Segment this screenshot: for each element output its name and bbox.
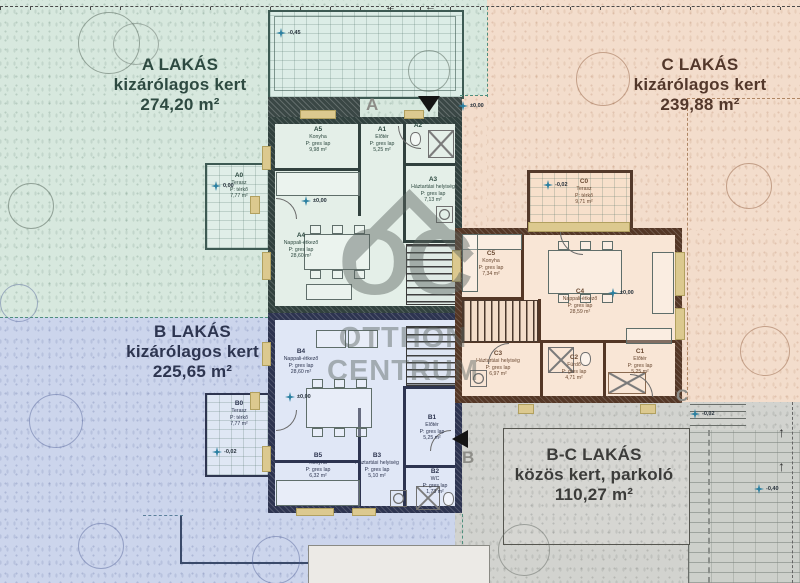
zone-border-peach-inner-v (687, 98, 688, 400)
elevation-marker: 0,00 (211, 181, 234, 191)
garden-bc-label: B-C LAKÁS közös kert, parkoló 110,27 m² (483, 445, 705, 505)
driveway-step (690, 404, 746, 405)
room-label-b2: B2 WC P: gres lap 1,73 m² (412, 468, 458, 496)
window-mark (262, 446, 271, 472)
retaining-wall (180, 516, 182, 564)
zone-border-green-peach-h (460, 95, 488, 96)
entrance-marker-bc (452, 430, 468, 448)
room-label-c4: C4 Nappali-étkező P: gres lap 28,59 m² (548, 288, 612, 316)
zone-border-green-blue (0, 317, 268, 318)
elevation-star-icon (211, 181, 221, 191)
room-label-c1: C1 Előtér P: gres lap 5,25 m² (612, 348, 668, 376)
elevation-star-icon (301, 196, 311, 206)
tree-sketch (498, 524, 550, 576)
garden-a-sub: kizárólagos kert (75, 75, 285, 95)
elevation-star-icon (212, 447, 222, 457)
elevation-marker: -0,02 (543, 180, 568, 190)
garden-c-sub: kizárólagos kert (595, 75, 800, 95)
patio-panel (308, 545, 490, 583)
chair (356, 428, 367, 437)
room-label-a5: A5 Konyha P: gres lap 9,98 m² (290, 126, 346, 154)
garden-c-label: C LAKÁS kizárólagos kert 239,88 m² (595, 55, 800, 115)
garden-b-sub: kizárólagos kert (85, 342, 300, 362)
kitchen-counter (276, 480, 360, 506)
elevation-marker: ±0,00 (458, 101, 484, 111)
dim-mark (518, 404, 534, 414)
room-label-b1: B1 Előtér P: gres lap 5,25 m² (406, 414, 458, 442)
garden-a-title: A LAKÁS (75, 55, 285, 75)
driveway-step (690, 425, 746, 426)
room-label-a2: A2 (406, 122, 430, 130)
window-mark (262, 146, 271, 170)
arrow-up-icon: ↑ (778, 424, 785, 440)
tree-sketch (726, 163, 772, 209)
property-line-east (792, 402, 793, 583)
plot-boundary-top (0, 6, 800, 11)
window-mark (300, 110, 336, 119)
wall-a (403, 163, 455, 166)
tree-sketch (29, 394, 83, 448)
garden-bc-area: 110,27 m² (483, 485, 705, 505)
garden-b-label: B LAKÁS kizárólagos kert 225,65 m² (85, 322, 300, 382)
wall-c (603, 340, 606, 396)
garden-bc-title: B-C LAKÁS (483, 445, 705, 465)
sofa (626, 328, 672, 344)
tree-sketch (78, 523, 124, 569)
site-plan: ↑ ↑ ← ← (0, 0, 800, 583)
section-letter-a: A (366, 95, 378, 115)
elevation-star-icon (458, 101, 468, 111)
zone-border-blue-gray (462, 514, 463, 544)
garden-bc-sub: közös kert, parkoló (483, 465, 705, 485)
zone-border-green-peach (487, 7, 488, 97)
arrow-up-icon: ↑ (778, 458, 785, 474)
arrow-left-icon: ← (425, 1, 436, 13)
window-mark (528, 222, 630, 232)
window-mark (296, 508, 334, 516)
window-mark (262, 252, 271, 280)
window-mark (675, 252, 685, 296)
tree-sketch (252, 536, 300, 583)
arrow-left-icon: ← (385, 1, 396, 13)
chair (602, 241, 613, 250)
elevation-marker: ±0,00 (608, 288, 634, 298)
dining-table (306, 388, 372, 428)
elevation-star-icon (608, 288, 618, 298)
room-label-a1: A1 Előtér P: gres lap 5,25 m² (360, 126, 404, 154)
garden-a-area: 274,20 m² (75, 95, 285, 115)
section-letter-b: B (462, 448, 474, 468)
garden-c-title: C LAKÁS (595, 55, 800, 75)
garden-a-label: A LAKÁS kizárólagos kert 274,20 m² (75, 55, 285, 115)
elevation-marker: ±0,00 (285, 392, 311, 402)
section-letter-c: C (676, 386, 688, 406)
wall-b (403, 388, 406, 506)
tree-sketch (8, 183, 54, 229)
washing-machine (390, 490, 407, 507)
elevation-star-icon (276, 28, 286, 38)
tree-sketch (408, 50, 450, 92)
garden-b-title: B LAKÁS (85, 322, 300, 342)
elevation-marker: -0,02 (212, 447, 237, 457)
elevation-star-icon (690, 409, 700, 419)
watermark-line2: CENTRUM (318, 355, 488, 388)
wall-c (540, 340, 543, 396)
garden-c-zone-east (682, 230, 800, 402)
room-label-b0: B0 Terasz P: térkő 7,77 m² (212, 400, 266, 428)
elevation-star-icon (754, 484, 764, 494)
elevation-marker: -0,40 (754, 484, 779, 494)
room-label-b3: B3 Háztartási helyiség P: gres lap 5,10 … (352, 452, 402, 480)
elevation-star-icon (285, 392, 295, 402)
elevation-marker: -0,02 (690, 409, 715, 419)
garden-c-area: 239,88 m² (595, 95, 800, 115)
garden-b-area: 225,65 m² (85, 362, 300, 382)
watermark-logo: OC (318, 216, 488, 308)
wall-a (275, 168, 360, 171)
room-label-c2: C2 Fürdő P: gres lap 4,71 m² (548, 354, 600, 382)
dim-mark (640, 404, 656, 414)
shower (428, 130, 454, 158)
elevation-star-icon (543, 180, 553, 190)
driveway-centerline (708, 430, 710, 583)
window-mark (352, 508, 376, 516)
watermark-line1: OTTHON (318, 322, 488, 355)
chair (334, 428, 345, 437)
wall-c (538, 299, 541, 343)
chair (312, 428, 323, 437)
elevation-marker: -0,45 (276, 28, 301, 38)
sofa (652, 252, 674, 314)
tree-sketch (740, 326, 790, 376)
watermark: OC OTTHON CENTRUM (318, 182, 488, 388)
garden-fence-dashed (143, 515, 183, 516)
entrance-marker-a (418, 96, 440, 112)
room-label-b5: B5 Konyha P: gres lap 6,32 m² (290, 452, 346, 480)
window-mark (675, 308, 685, 340)
